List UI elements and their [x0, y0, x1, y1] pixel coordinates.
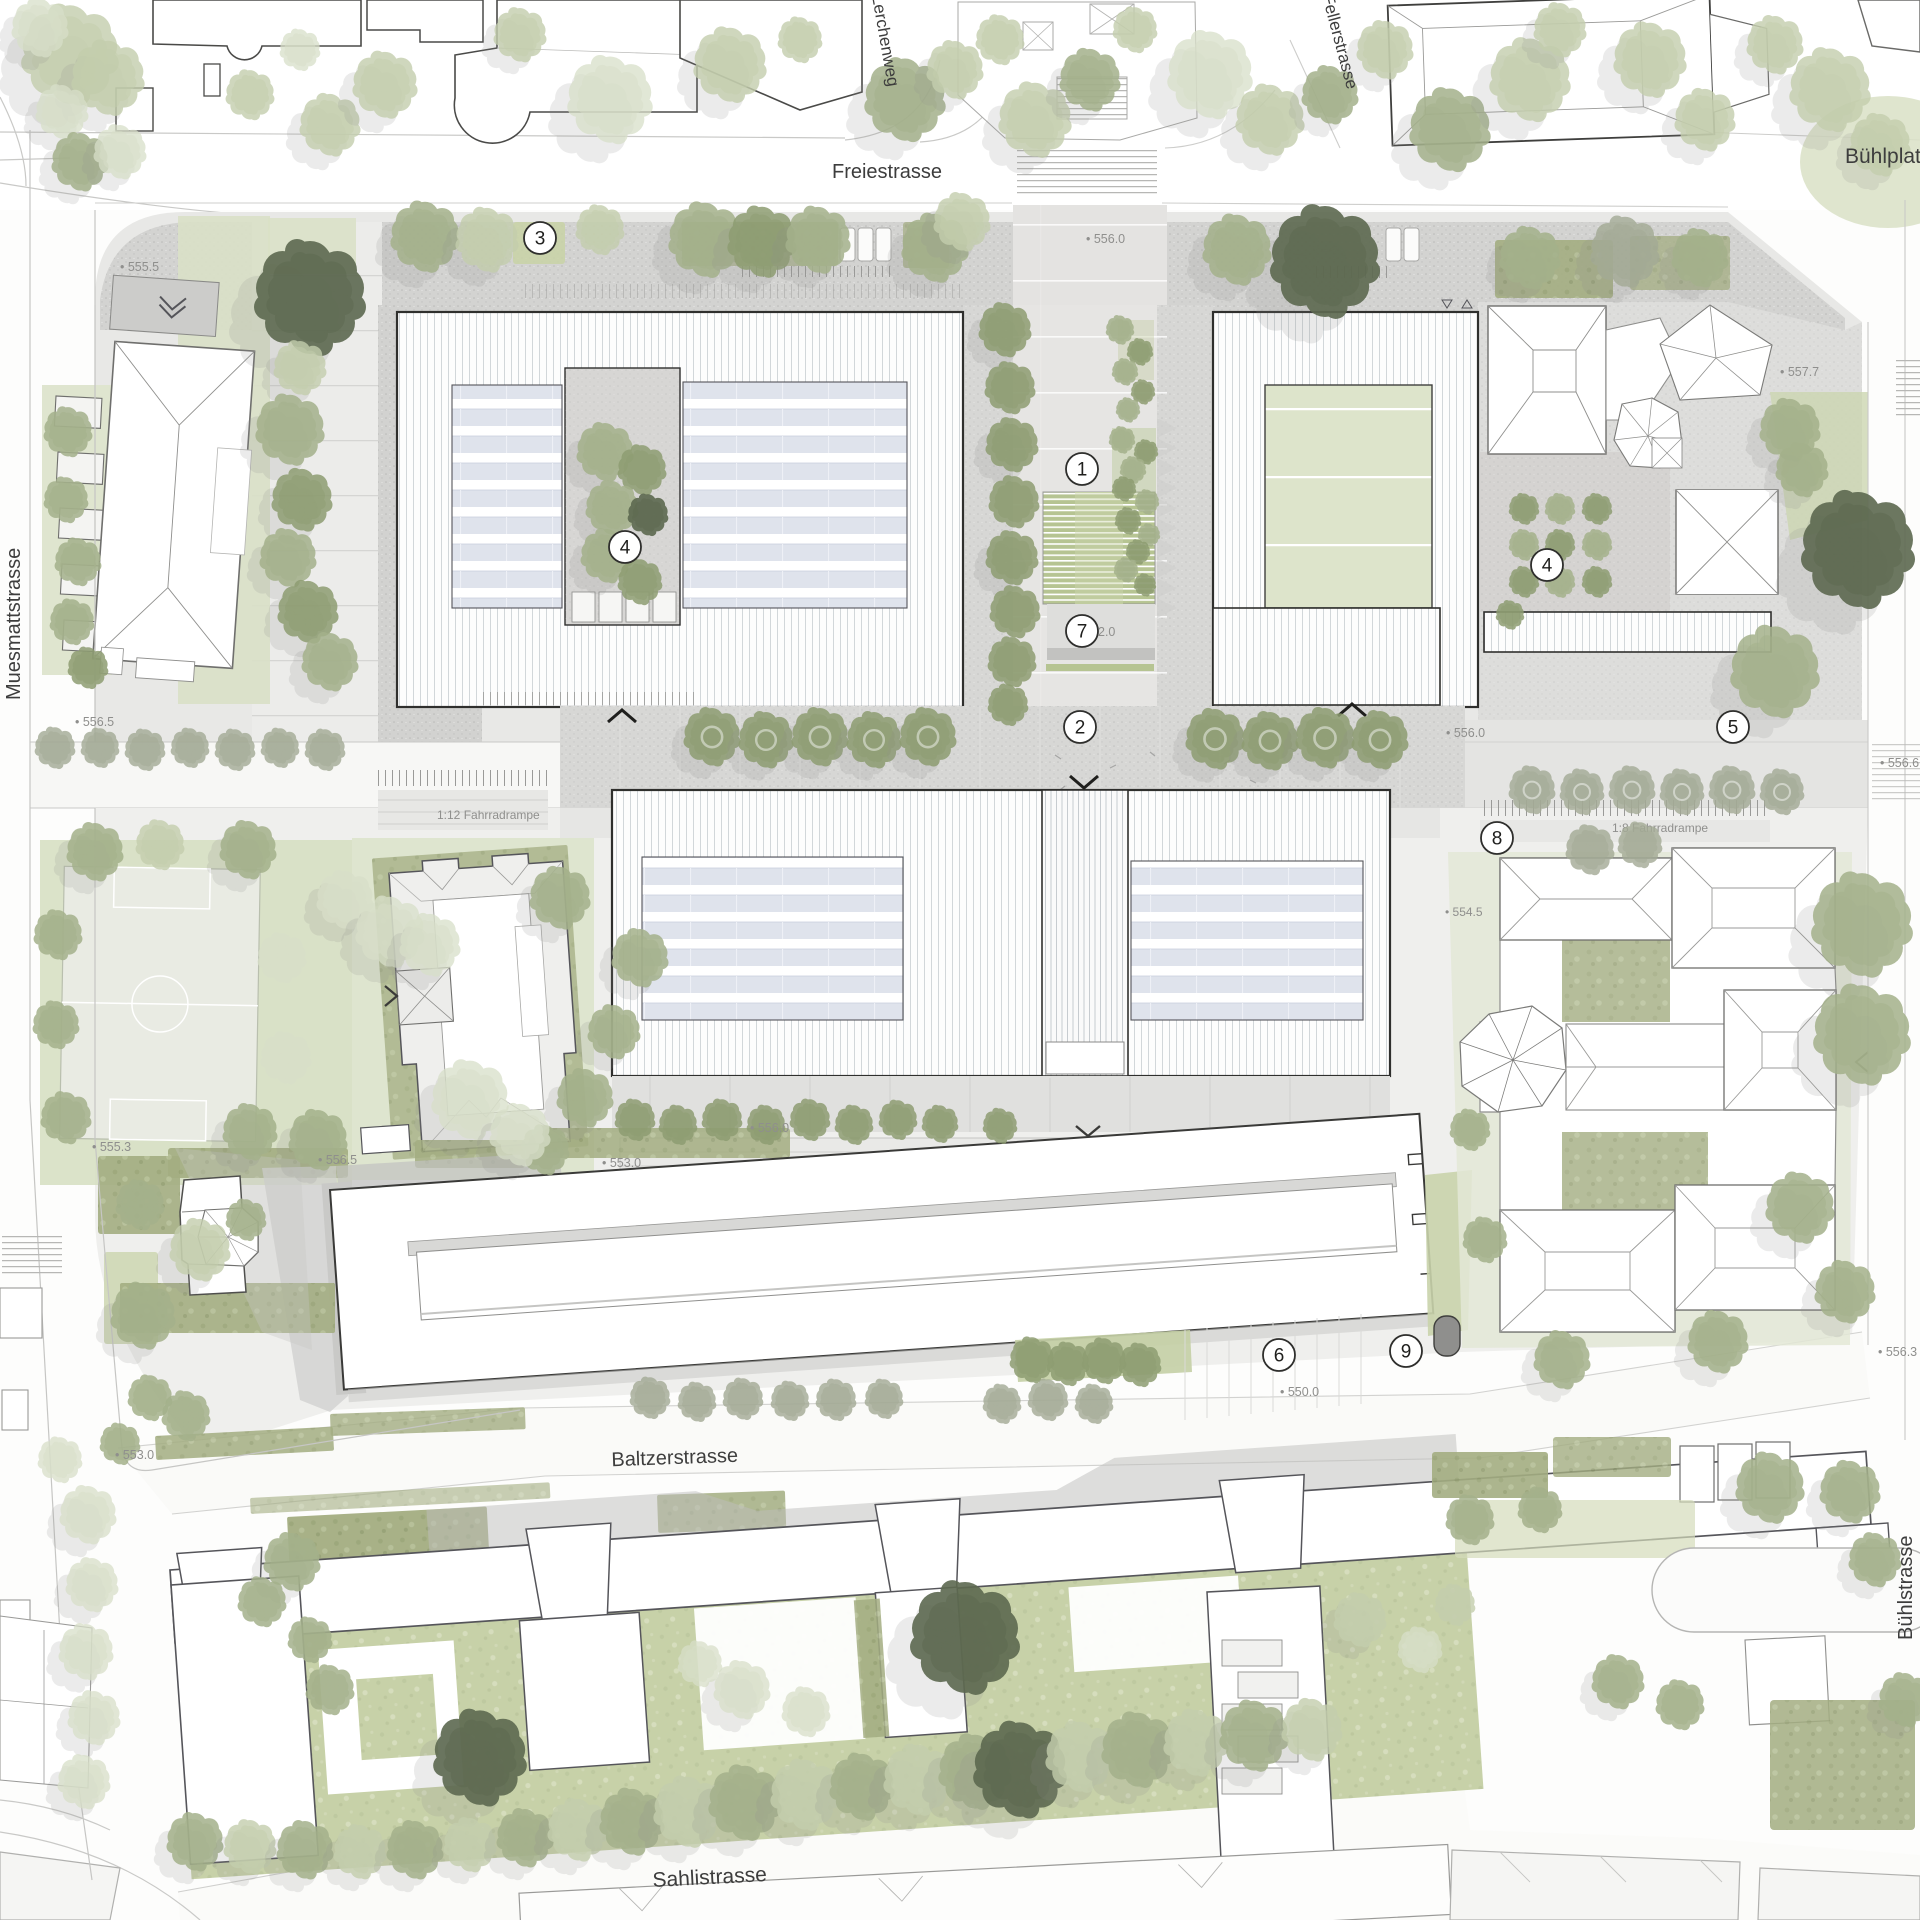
- svg-text:9: 9: [1401, 1342, 1412, 1363]
- svg-text:1: 1: [1077, 460, 1088, 481]
- svg-text:• 555.5: • 555.5: [120, 260, 159, 274]
- svg-text:6: 6: [1274, 1346, 1285, 1367]
- svg-text:• 556.6: • 556.6: [1880, 756, 1919, 770]
- svg-text:Baltzerstrasse: Baltzerstrasse: [611, 1445, 738, 1471]
- svg-text:3: 3: [535, 229, 546, 250]
- svg-text:• 555.3: • 555.3: [92, 1140, 131, 1154]
- svg-text:• 553.0: • 553.0: [115, 1448, 154, 1462]
- svg-text:Bühlstrasse: Bühlstrasse: [1895, 1536, 1917, 1641]
- svg-text:1:12 Fahrradrampe: 1:12 Fahrradrampe: [437, 808, 540, 822]
- svg-text:Bühlplatz: Bühlplatz: [1845, 145, 1920, 168]
- svg-text:8: 8: [1492, 829, 1503, 850]
- svg-text:4: 4: [1542, 556, 1553, 577]
- svg-text:• 557.7: • 557.7: [1780, 365, 1819, 379]
- svg-text:Muesmattstrasse: Muesmattstrasse: [3, 548, 25, 700]
- svg-text:• 556.0: • 556.0: [750, 1121, 789, 1135]
- svg-text:2: 2: [1075, 718, 1086, 739]
- svg-text:• 556.3: • 556.3: [1878, 1345, 1917, 1359]
- svg-text:• 556.5: • 556.5: [318, 1153, 357, 1167]
- svg-text:• 553.0: • 553.0: [602, 1156, 641, 1170]
- svg-text:Freiestrasse: Freiestrasse: [832, 161, 942, 183]
- svg-text:• 554.5: • 554.5: [1445, 905, 1483, 919]
- svg-text:5: 5: [1728, 718, 1739, 739]
- svg-text:• 556.0: • 556.0: [1446, 726, 1485, 740]
- svg-text:• 550.0: • 550.0: [1280, 1385, 1319, 1399]
- svg-text:• 556.0: • 556.0: [1086, 232, 1125, 246]
- svg-text:• 556.5: • 556.5: [75, 715, 114, 729]
- svg-text:4: 4: [620, 538, 631, 559]
- svg-text:2.0: 2.0: [1098, 625, 1115, 639]
- svg-text:7: 7: [1077, 622, 1088, 643]
